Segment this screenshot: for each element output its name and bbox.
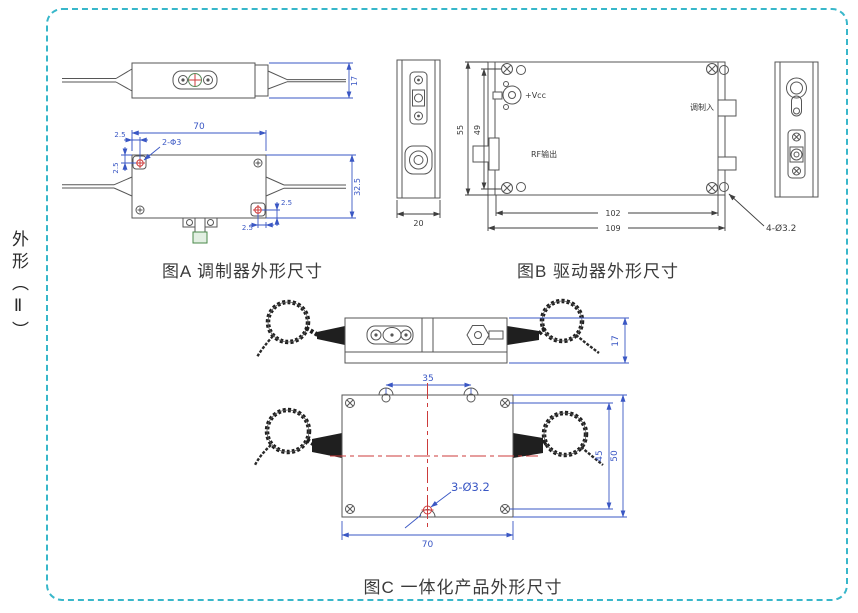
rf-output-label: RF输出 <box>531 149 557 159</box>
dim-hole-offset-y-label: 2.5 <box>112 162 120 173</box>
figure-a-drawing: 17 7 <box>50 38 385 262</box>
dim-hole-spacing-v-label: 49 <box>473 125 482 135</box>
modulator-top-view: 17 <box>62 63 359 98</box>
fiber-coil-left-top <box>257 302 318 357</box>
dim-body-width-label: 32.5 <box>353 178 362 196</box>
dim-ear-spacing: 35 <box>386 374 471 394</box>
dim-ear-spacing-label: 35 <box>422 374 433 384</box>
dim-hole-spacing-h: 102 <box>496 195 718 218</box>
driver-hole-callout-label: 4-Ø3.2 <box>766 223 796 234</box>
fiber-coil-left-bottom <box>255 410 315 465</box>
vcc-label: +Vcc <box>525 91 546 100</box>
dim-body-length: 70 <box>132 122 266 151</box>
figure-c-caption: 图C 一体化产品外形尺寸 <box>328 573 598 598</box>
rf-output-connector <box>473 138 499 170</box>
dim-body-length-label: 70 <box>193 122 205 132</box>
dim-body-height: 17 <box>269 63 359 98</box>
dim-hole-offset-y2: 2.5 <box>262 199 292 226</box>
integrated-side-view: 17 <box>257 301 629 363</box>
dim-depth: 20 <box>397 200 440 228</box>
hole-callout-label: 2-Φ3 <box>162 138 181 147</box>
figure-c-drawing: 17 35 <box>255 295 657 567</box>
integrated-hole-callout-label: 3-Ø3.2 <box>451 480 490 494</box>
figure-b-caption: 图B 驱动器外形尺寸 <box>468 257 728 282</box>
bottom-electrical-connector <box>183 218 217 243</box>
modulator-plan-view: 70 2.5 2.5 2-Φ3 32.5 <box>62 122 362 243</box>
driver-right-end-view <box>775 62 818 197</box>
dim-c-body-length-label: 70 <box>422 540 434 550</box>
dim-hole-offset-x-label: 2.5 <box>114 131 125 139</box>
driver-front-view: +Vcc RF输出 调制入 55 49 <box>456 62 796 234</box>
dim-height-outer-label: 55 <box>456 125 465 135</box>
dim-c-hole-spacing-v-label: 45 <box>595 450 605 461</box>
integrated-plan-view: 45 50 70 3-Ø3.2 <box>255 383 627 550</box>
dim-hole-spacing-h-label: 102 <box>605 209 620 218</box>
figure-b-drawing: 20 +Vcc <box>385 50 855 285</box>
dim-c-body-height-label: 17 <box>611 335 621 346</box>
fiber-coil-right-bottom <box>541 413 603 465</box>
dim-height-outer: 55 <box>456 62 488 195</box>
dim-depth-label: 20 <box>413 219 423 228</box>
figure-a-caption: 图A 调制器外形尺寸 <box>110 257 375 282</box>
dim-body-height-label: 17 <box>350 76 359 86</box>
driver-left-end-view: 20 <box>397 60 440 228</box>
dim-length-label: 109 <box>605 224 620 233</box>
page-side-label: 外形（Ⅱ） <box>6 230 31 400</box>
modulation-input-label: 调制入 <box>690 102 714 112</box>
fiber-coil-right-top <box>538 301 599 353</box>
dim-c-hole-spacing-v: 45 <box>510 403 613 509</box>
dim-hole-offset-x2-label: 2.5 <box>242 224 253 232</box>
drawing-page: 外形（Ⅱ） 17 <box>0 0 858 613</box>
driver-hole-callout: 4-Ø3.2 <box>729 194 796 234</box>
dim-c-body-width-label: 50 <box>610 450 620 462</box>
dim-hole-offset-y2-label: 2.5 <box>281 199 292 207</box>
dim-body-width: 32.5 <box>266 155 362 218</box>
